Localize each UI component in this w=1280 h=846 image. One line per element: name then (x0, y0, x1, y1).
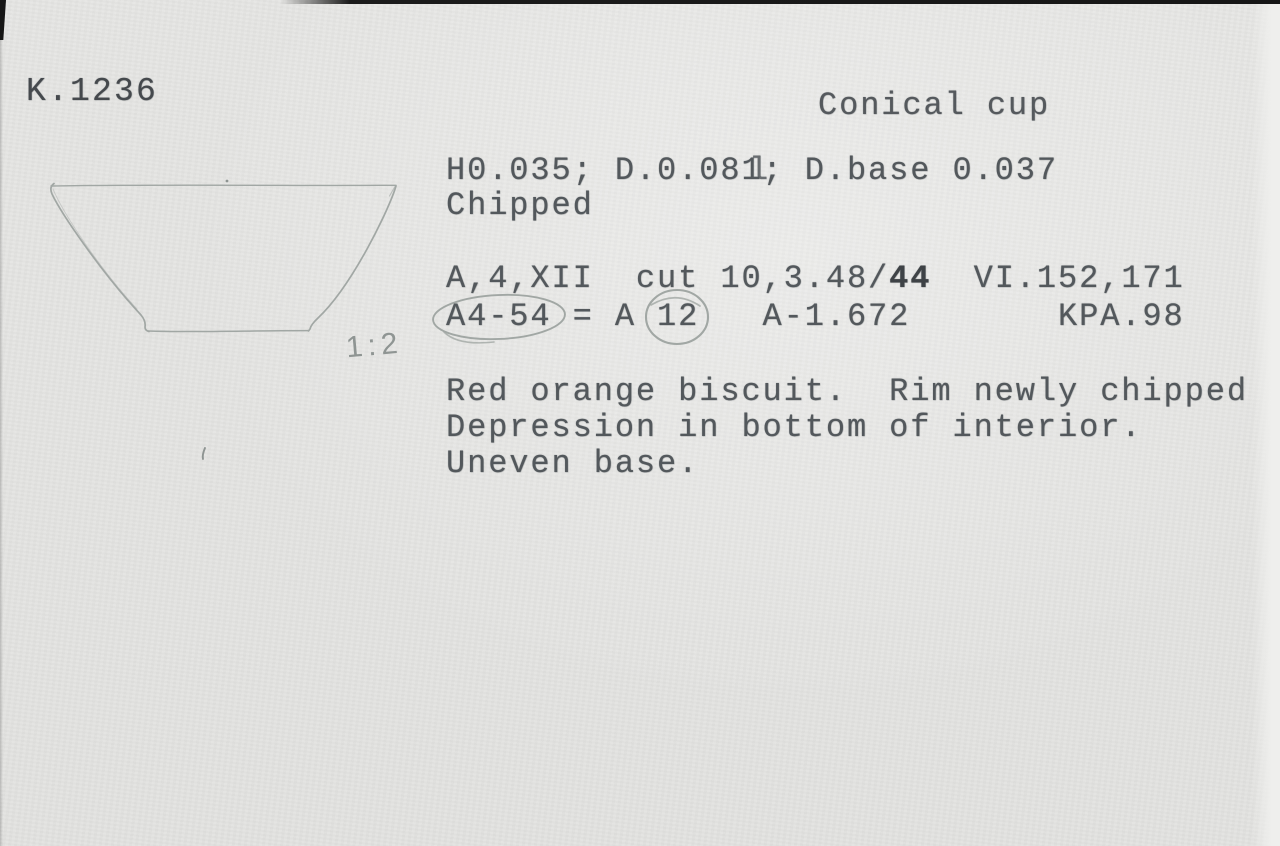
context-line-1: A,4,XII cut 10,3.48/44 VI.152,171 (446, 260, 1185, 297)
description-line-2: Depression in bottom of interior. (446, 409, 1142, 446)
description-line-3: Uneven base. (446, 445, 699, 482)
typewriter-overstrike-mark: l (749, 153, 770, 188)
excavation-context-block: A,4,XII cut 10,3.48/44 VI.152,171A4-54 =… (446, 260, 1185, 336)
scale-annotation: 1:2 (345, 327, 404, 366)
object-title: Conical cup (818, 88, 1050, 124)
description-block: Red orange biscuit. Rim newly chippedDep… (446, 374, 1248, 482)
scanner-background-top-edge (280, 0, 1280, 4)
card-right-edge (1252, 0, 1280, 846)
card-left-edge-shadow (0, 0, 3, 846)
condition-line: Chipped (446, 187, 594, 224)
description-line-1: Red orange biscuit. Rim newly chipped (446, 373, 1248, 410)
catalog-number: K.1236 (26, 74, 158, 110)
overstruck-year: 44 (889, 260, 931, 297)
context-line-2: A4-54 = A 12 A-1.672 KPA.98 (446, 298, 1185, 335)
